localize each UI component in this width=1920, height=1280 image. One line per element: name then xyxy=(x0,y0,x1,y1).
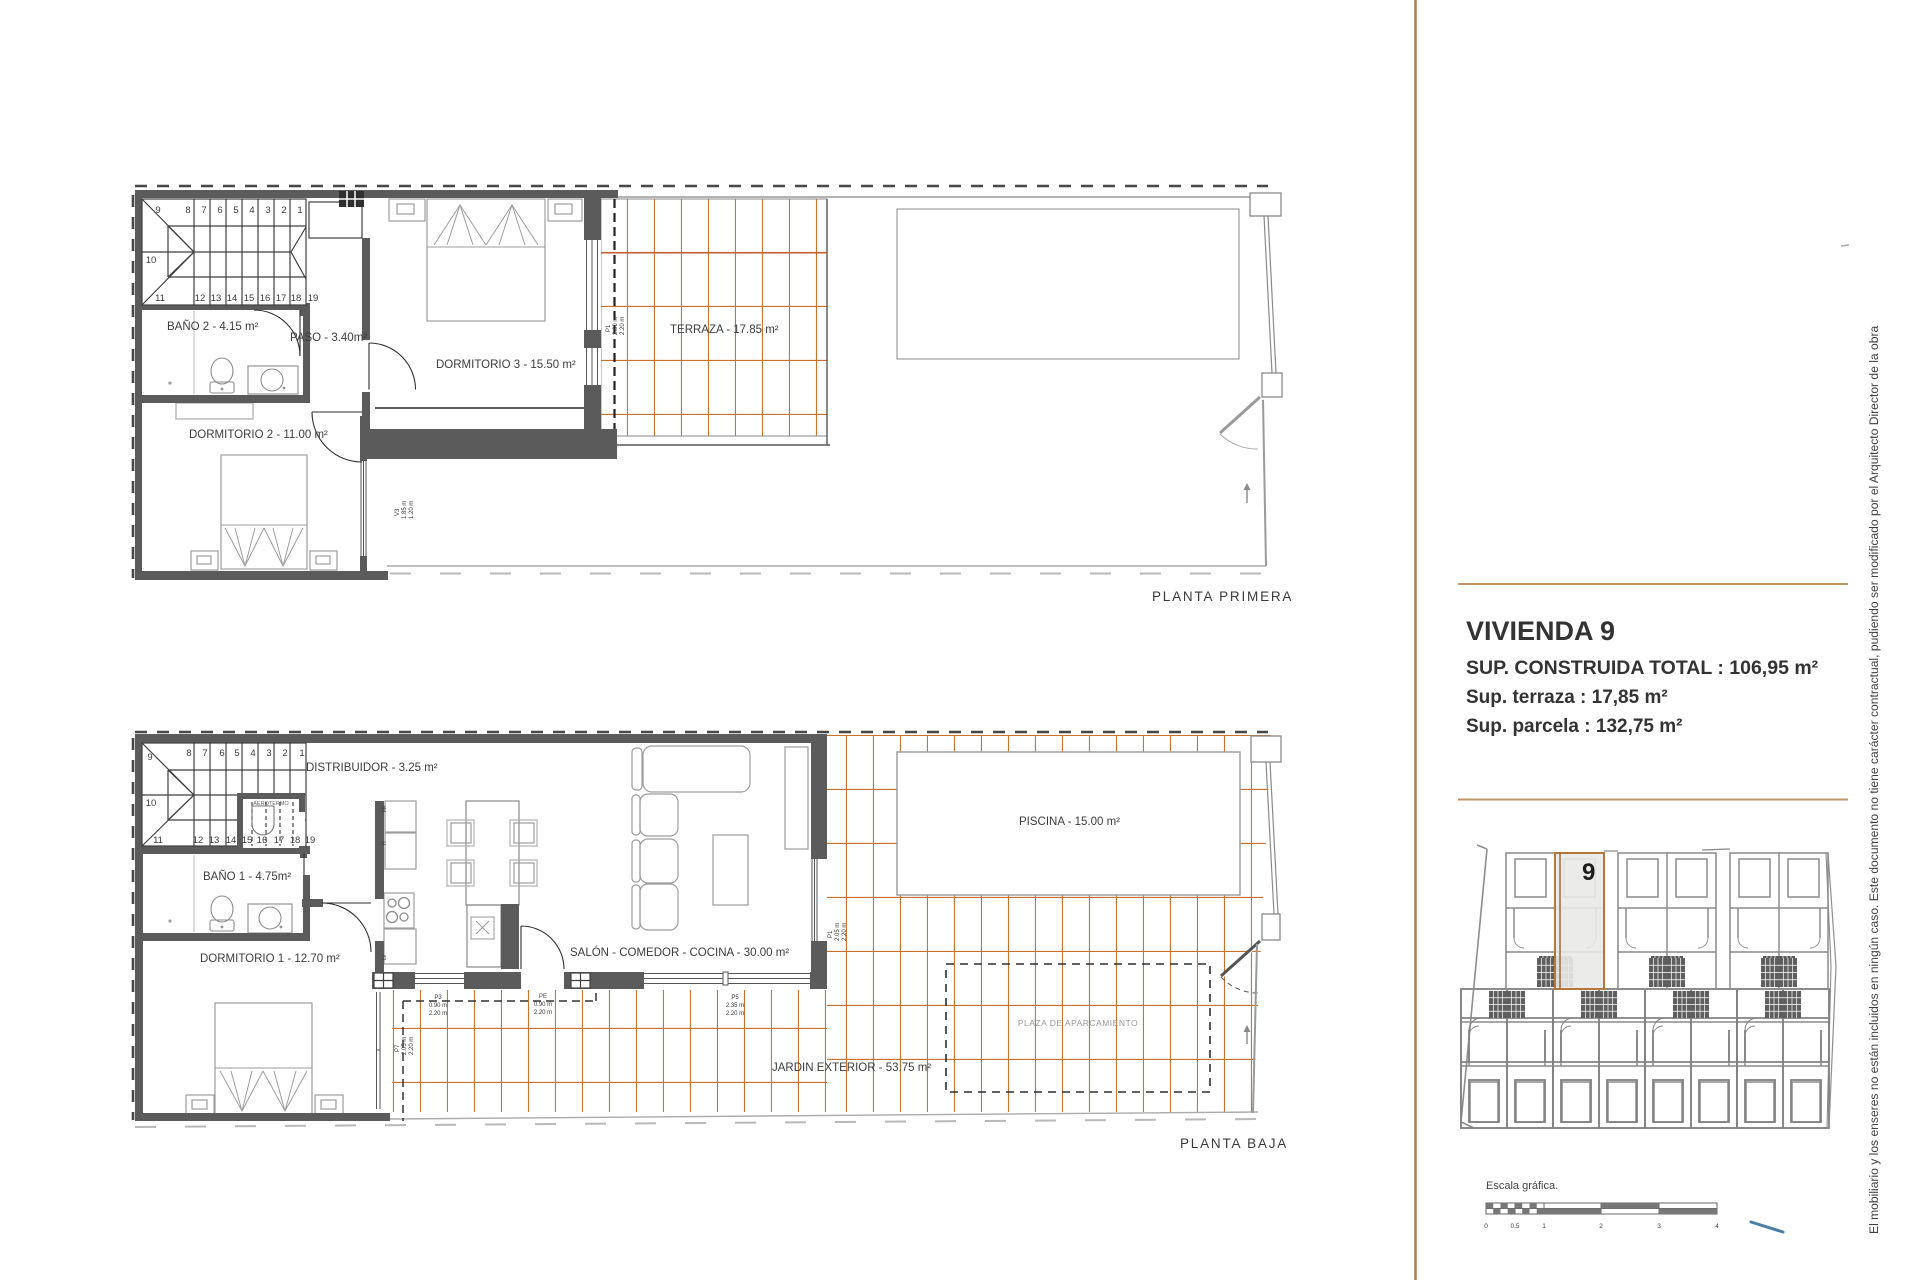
svg-text:P7: P7 xyxy=(395,1044,401,1052)
svg-text:10: 10 xyxy=(146,798,157,809)
svg-text:9: 9 xyxy=(1582,859,1595,886)
svg-text:2.20 m: 2.20 m xyxy=(726,1011,744,1017)
svg-text:DORMITORIO 2 - 11.00 m²: DORMITORIO 2 - 11.00 m² xyxy=(189,429,328,441)
svg-text:2.20 m: 2.20 m xyxy=(534,1010,552,1016)
svg-text:13: 13 xyxy=(209,835,220,846)
svg-text:SALÓN - COMEDOR - COCINA - 30.: SALÓN - COMEDOR - COCINA - 30.00 m² xyxy=(570,946,789,959)
svg-text:PISCINA - 15.00 m²: PISCINA - 15.00 m² xyxy=(1019,816,1120,828)
svg-text:18: 18 xyxy=(291,293,302,304)
svg-text:TERRAZA - 17.85 m²: TERRAZA - 17.85 m² xyxy=(670,324,779,336)
svg-text:5: 5 xyxy=(234,748,239,759)
svg-text:10: 10 xyxy=(146,255,157,266)
svg-text:0: 0 xyxy=(1484,1223,1488,1230)
svg-text:2.20 m: 2.20 m xyxy=(620,317,626,335)
svg-text:PE: PE xyxy=(539,994,547,1000)
svg-text:DISTRIBUIDOR - 3.25 m²: DISTRIBUIDOR - 3.25 m² xyxy=(306,762,438,774)
svg-text:8: 8 xyxy=(186,748,191,759)
svg-text:1.20 m: 1.20 m xyxy=(409,501,415,519)
svg-text:P3: P3 xyxy=(434,995,442,1001)
svg-text:0.90 m: 0.90 m xyxy=(429,1003,447,1009)
svg-text:17: 17 xyxy=(274,835,285,846)
svg-text:4: 4 xyxy=(250,748,255,759)
svg-text:DORMITORIO 3 - 15.50 m²: DORMITORIO 3 - 15.50 m² xyxy=(436,359,576,371)
svg-text:6: 6 xyxy=(219,748,224,759)
svg-text:11: 11 xyxy=(155,293,165,304)
svg-text:LV: LV xyxy=(382,954,388,960)
svg-text:Sup. parcela : 132,75 m²: Sup. parcela : 132,75 m² xyxy=(1466,716,1683,737)
svg-text:PLANTA PRIMERA: PLANTA PRIMERA xyxy=(1152,589,1293,604)
svg-text:AEROTERMO: AEROTERMO xyxy=(253,801,289,807)
svg-text:13: 13 xyxy=(211,293,222,304)
svg-text:2.05 m: 2.05 m xyxy=(402,1037,408,1055)
svg-text:P1: P1 xyxy=(606,324,612,332)
svg-text:2.05 m: 2.05 m xyxy=(835,923,841,941)
svg-text:2.20 m: 2.20 m xyxy=(409,1037,415,1055)
svg-text:1: 1 xyxy=(1542,1223,1546,1230)
svg-text:JARDIN EXTERIOR - 53.75 m²: JARDIN EXTERIOR - 53.75 m² xyxy=(772,1062,931,1074)
svg-text:2.20 m: 2.20 m xyxy=(429,1011,447,1017)
svg-text:4: 4 xyxy=(1715,1223,1719,1230)
svg-text:14: 14 xyxy=(227,293,238,304)
svg-text:VIVIENDA 9: VIVIENDA 9 xyxy=(1466,616,1615,646)
svg-text:2.20 m: 2.20 m xyxy=(842,923,848,941)
svg-text:3: 3 xyxy=(265,205,270,216)
svg-text:P1: P1 xyxy=(828,930,834,938)
svg-text:0.90 m: 0.90 m xyxy=(534,1002,552,1008)
svg-text:BAÑO 1 - 4.75m²: BAÑO 1 - 4.75m² xyxy=(203,870,291,883)
svg-text:FR: FR xyxy=(382,805,388,812)
svg-text:Escala gráfica.: Escala gráfica. xyxy=(1486,1180,1558,1192)
svg-text:14: 14 xyxy=(226,835,237,846)
svg-text:15: 15 xyxy=(242,835,253,846)
svg-text:8: 8 xyxy=(185,205,190,216)
svg-text:19: 19 xyxy=(308,293,319,304)
svg-text:7: 7 xyxy=(202,748,207,759)
svg-text:12: 12 xyxy=(195,293,206,304)
svg-text:Sup. terraza : 17,85 m²: Sup. terraza : 17,85 m² xyxy=(1466,687,1668,708)
svg-text:15: 15 xyxy=(244,293,255,304)
svg-text:2.35 m: 2.35 m xyxy=(726,1003,744,1009)
svg-text:16: 16 xyxy=(257,835,268,846)
svg-text:PLANTA BAJA: PLANTA BAJA xyxy=(1180,1136,1288,1151)
svg-text:DORMITORIO 1 - 12.70 m²: DORMITORIO 1 - 12.70 m² xyxy=(200,953,340,965)
svg-text:P5: P5 xyxy=(731,995,739,1001)
svg-text:2.00 m: 2.00 m xyxy=(613,317,619,335)
svg-text:4: 4 xyxy=(249,205,254,216)
svg-text:2: 2 xyxy=(282,748,287,759)
svg-text:11: 11 xyxy=(153,835,163,846)
svg-text:9: 9 xyxy=(147,752,152,763)
svg-text:9: 9 xyxy=(155,205,160,216)
svg-text:17: 17 xyxy=(276,293,287,304)
svg-text:3: 3 xyxy=(1657,1223,1661,1230)
svg-text:V3: V3 xyxy=(395,508,401,516)
svg-text:19: 19 xyxy=(305,835,316,846)
svg-text:18: 18 xyxy=(290,835,301,846)
svg-text:7: 7 xyxy=(201,205,206,216)
svg-text:SUP. CONSTRUIDA TOTAL : 106,95: SUP. CONSTRUIDA TOTAL : 106,95 m² xyxy=(1466,657,1819,679)
svg-text:16: 16 xyxy=(260,293,271,304)
svg-text:6: 6 xyxy=(217,205,222,216)
svg-text:BAÑO 2 - 4.15 m²: BAÑO 2 - 4.15 m² xyxy=(167,320,259,333)
svg-text:PASO - 3.40m²: PASO - 3.40m² xyxy=(290,332,367,344)
svg-text:5: 5 xyxy=(233,205,238,216)
svg-text:12: 12 xyxy=(193,835,204,846)
svg-text:PLAZA DE APARCAMIENTO: PLAZA DE APARCAMIENTO xyxy=(1018,1018,1138,1028)
svg-text:2: 2 xyxy=(281,205,286,216)
svg-text:3: 3 xyxy=(266,748,271,759)
svg-text:H: H xyxy=(382,841,388,845)
svg-text:0.5: 0.5 xyxy=(1510,1223,1519,1230)
svg-text:1.85 m: 1.85 m xyxy=(402,501,408,519)
svg-text:1: 1 xyxy=(297,205,302,216)
svg-text:El mobiliario y los enseres no: El mobiliario y los enseres no están inc… xyxy=(1867,326,1881,1234)
svg-text:1: 1 xyxy=(299,748,304,759)
svg-text:2: 2 xyxy=(1599,1223,1603,1230)
